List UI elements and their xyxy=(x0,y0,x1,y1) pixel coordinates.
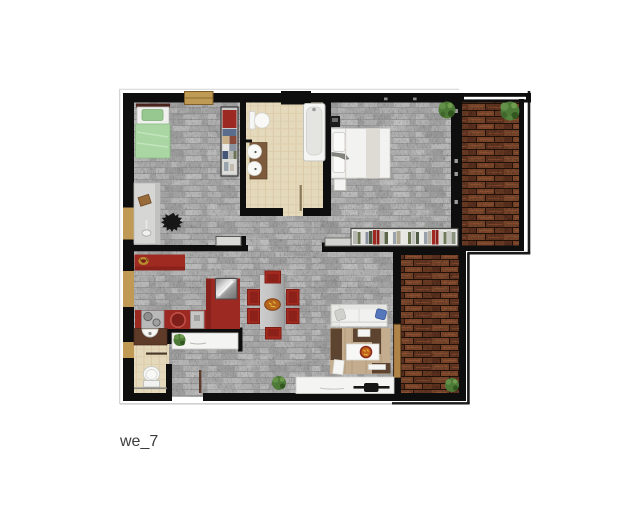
svg-text:we_7: we_7 xyxy=(119,433,158,450)
